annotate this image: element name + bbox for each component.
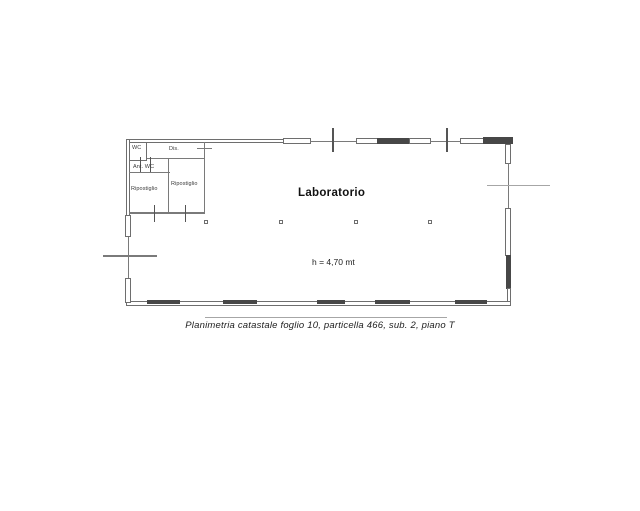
height-annotation: h = 4,70 mt — [312, 257, 355, 267]
room-label-ant-wc: Ant. WC — [133, 164, 154, 170]
caption-rule — [205, 317, 447, 318]
pillar-4 — [428, 220, 432, 224]
wall-right-thin — [508, 163, 509, 209]
opening-mark-dis — [197, 148, 212, 149]
door-tick-2 — [185, 205, 186, 222]
wall-top-dark-corner — [483, 137, 513, 144]
section-tick-top-2 — [446, 128, 448, 152]
wall-top-main — [127, 139, 284, 143]
pillar-1 — [204, 220, 208, 224]
window-bottom-5 — [455, 300, 487, 304]
window-top-4 — [460, 138, 484, 144]
window-top-2 — [356, 138, 378, 144]
room-label-wc: WC — [132, 145, 141, 151]
room-label-ripostiglio-right: Ripostiglio — [171, 181, 197, 187]
room-label-ripostiglio-left: Ripostiglio — [131, 186, 157, 192]
wall-block-right — [204, 142, 205, 214]
pilaster-right-1 — [505, 144, 511, 164]
wall-right-dark — [506, 255, 511, 289]
room-label-dis: Dis. — [169, 146, 179, 152]
window-top-dark — [377, 138, 409, 144]
wall-dis-bottom — [147, 158, 205, 159]
floor-plan-canvas: WC Dis. Ant. WC Ripostiglio Ripostiglio … — [0, 0, 640, 511]
window-top-1 — [283, 138, 311, 144]
pilaster-left-2 — [125, 278, 131, 303]
window-bottom-4 — [375, 300, 410, 304]
wall-left-thin — [128, 237, 129, 278]
door-tick-1 — [154, 205, 155, 222]
reference-line-right — [487, 185, 550, 186]
wall-block-middle — [168, 158, 169, 214]
window-bottom-2 — [223, 300, 257, 304]
window-top-3 — [409, 138, 431, 144]
section-tick-top-1 — [332, 128, 334, 152]
reference-line-left — [103, 255, 157, 257]
pillar-3 — [354, 220, 358, 224]
caption: Planimetria catastale foglio 10, partice… — [60, 320, 580, 331]
wall-block-bottom — [129, 212, 205, 214]
window-bottom-3 — [317, 300, 345, 304]
room-label-laboratorio: Laboratorio — [298, 187, 365, 199]
window-bottom-1 — [147, 300, 180, 304]
pillar-2 — [279, 220, 283, 224]
pilaster-right-2 — [505, 208, 511, 256]
pilaster-left-1 — [125, 215, 131, 237]
wall-antwc-bottom — [129, 172, 170, 173]
